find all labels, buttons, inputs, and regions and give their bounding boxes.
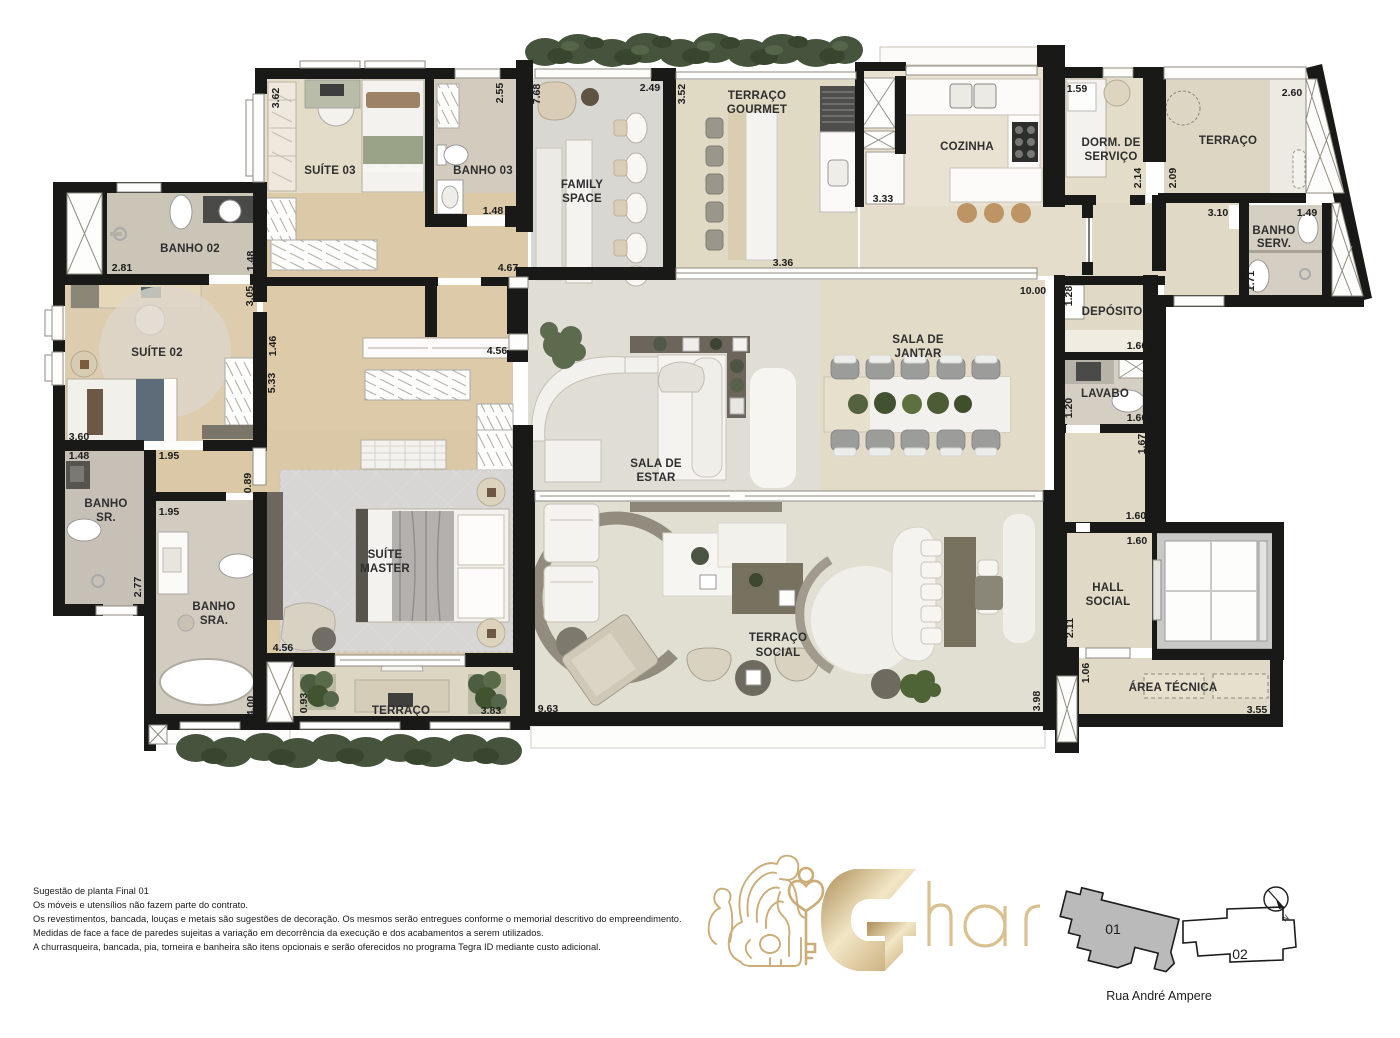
svg-text:Os móveis e utensílios não faz: Os móveis e utensílios não fazem parte d… xyxy=(33,900,248,910)
svg-text:JANTAR: JANTAR xyxy=(895,348,942,360)
svg-text:4.56: 4.56 xyxy=(487,345,508,357)
svg-text:3.60: 3.60 xyxy=(69,431,90,443)
svg-text:10.00: 10.00 xyxy=(1020,285,1046,297)
svg-text:SERV.: SERV. xyxy=(1257,238,1291,250)
svg-text:COZINHA: COZINHA xyxy=(940,141,994,153)
svg-text:2.81: 2.81 xyxy=(112,262,133,274)
svg-text:3.55: 3.55 xyxy=(1247,704,1268,716)
svg-text:FAMILY: FAMILY xyxy=(561,179,603,191)
svg-text:1.20: 1.20 xyxy=(1063,398,1075,419)
svg-text:SUÍTE 02: SUÍTE 02 xyxy=(131,346,182,359)
svg-text:3.62: 3.62 xyxy=(270,88,282,109)
svg-text:Medidas de face a face de pare: Medidas de face a face de paredes sujeit… xyxy=(33,928,544,938)
svg-text:SERVIÇO: SERVIÇO xyxy=(1085,151,1138,163)
svg-text:Os revestimentos, bancada, lou: Os revestimentos, bancada, louças e meta… xyxy=(33,914,682,924)
svg-text:1.46: 1.46 xyxy=(267,336,279,357)
svg-text:2.55: 2.55 xyxy=(494,83,506,104)
svg-text:3.05: 3.05 xyxy=(244,286,256,307)
svg-text:1.06: 1.06 xyxy=(1080,663,1092,684)
svg-text:7.68: 7.68 xyxy=(531,84,543,105)
svg-text:1.60: 1.60 xyxy=(1127,340,1148,352)
svg-text:1.48: 1.48 xyxy=(245,251,257,272)
svg-text:3.33: 3.33 xyxy=(873,193,894,205)
svg-text:2.14: 2.14 xyxy=(1132,168,1144,189)
svg-text:1.60: 1.60 xyxy=(1127,535,1148,547)
svg-text:MASTER: MASTER xyxy=(360,563,410,575)
svg-text:SALA DE: SALA DE xyxy=(892,334,944,346)
svg-text:1.71: 1.71 xyxy=(1245,271,1257,292)
svg-text:3.36: 3.36 xyxy=(773,257,794,269)
svg-text:BANHO 02: BANHO 02 xyxy=(160,243,220,255)
svg-text:01: 01 xyxy=(1105,921,1121,937)
svg-text:Sugestão de planta Final 01: Sugestão de planta Final 01 xyxy=(33,886,149,896)
svg-text:SR.: SR. xyxy=(96,512,116,524)
svg-text:SUÍTE 03: SUÍTE 03 xyxy=(304,164,355,177)
svg-text:1.48: 1.48 xyxy=(483,205,504,217)
svg-text:3.10: 3.10 xyxy=(1208,207,1229,219)
svg-text:2.60: 2.60 xyxy=(1282,87,1303,99)
svg-text:BANHO: BANHO xyxy=(1252,225,1295,237)
svg-text:2.49: 2.49 xyxy=(640,82,661,94)
svg-text:1.67: 1.67 xyxy=(1136,434,1148,455)
svg-text:BANHO: BANHO xyxy=(84,498,127,510)
svg-text:2.77: 2.77 xyxy=(132,577,144,598)
svg-text:Rua André Ampere: Rua André Ampere xyxy=(1106,989,1212,1003)
svg-text:1.95: 1.95 xyxy=(159,506,180,518)
svg-text:GOURMET: GOURMET xyxy=(727,104,787,116)
svg-text:2.09: 2.09 xyxy=(1167,168,1179,189)
svg-text:LAVABO: LAVABO xyxy=(1081,388,1129,400)
svg-text:TERRAÇO: TERRAÇO xyxy=(728,90,786,102)
svg-text:1.95: 1.95 xyxy=(159,450,180,462)
svg-text:BANHO: BANHO xyxy=(192,601,235,613)
svg-text:2.11: 2.11 xyxy=(1064,618,1076,638)
svg-text:02: 02 xyxy=(1232,946,1248,962)
svg-text:3.98: 3.98 xyxy=(1031,691,1043,712)
svg-text:1.48: 1.48 xyxy=(69,450,90,462)
svg-text:DORM. DE: DORM. DE xyxy=(1081,137,1140,149)
svg-text:0.93: 0.93 xyxy=(298,693,310,714)
svg-text:SUÍTE: SUÍTE xyxy=(368,548,403,561)
svg-text:BANHO 03: BANHO 03 xyxy=(453,165,513,177)
svg-text:3.83: 3.83 xyxy=(481,705,502,717)
svg-text:ÁREA TÉCNICA: ÁREA TÉCNICA xyxy=(1129,681,1218,694)
svg-text:A churrasqueira, bancada, pia,: A churrasqueira, bancada, pia, torneira … xyxy=(33,942,601,952)
svg-text:1.60: 1.60 xyxy=(1127,412,1148,424)
svg-text:HALL: HALL xyxy=(1092,582,1123,594)
svg-text:1.49: 1.49 xyxy=(1297,207,1318,219)
svg-text:SOCIAL: SOCIAL xyxy=(1086,596,1131,608)
svg-text:3.52: 3.52 xyxy=(676,84,688,105)
svg-text:SRA.: SRA. xyxy=(200,615,228,627)
svg-text:4.56: 4.56 xyxy=(273,642,294,654)
svg-text:TERRAÇO: TERRAÇO xyxy=(372,705,430,717)
svg-text:4.00: 4.00 xyxy=(245,696,257,717)
svg-text:5.33: 5.33 xyxy=(266,373,278,394)
svg-text:SPACE: SPACE xyxy=(562,193,602,205)
svg-text:1.59: 1.59 xyxy=(1067,83,1088,95)
svg-text:TERRAÇO: TERRAÇO xyxy=(749,632,807,644)
svg-text:9.63: 9.63 xyxy=(538,703,559,715)
svg-text:DEPÓSITO: DEPÓSITO xyxy=(1082,305,1143,318)
svg-text:1.28: 1.28 xyxy=(1063,286,1075,307)
svg-text:SOCIAL: SOCIAL xyxy=(756,647,801,659)
svg-text:4.67: 4.67 xyxy=(498,262,519,274)
svg-text:0.89: 0.89 xyxy=(242,473,254,494)
svg-text:1.60: 1.60 xyxy=(1126,510,1147,522)
svg-text:TERRAÇO: TERRAÇO xyxy=(1199,135,1257,147)
svg-text:ESTAR: ESTAR xyxy=(636,472,676,484)
svg-text:SALA DE: SALA DE xyxy=(630,458,682,470)
